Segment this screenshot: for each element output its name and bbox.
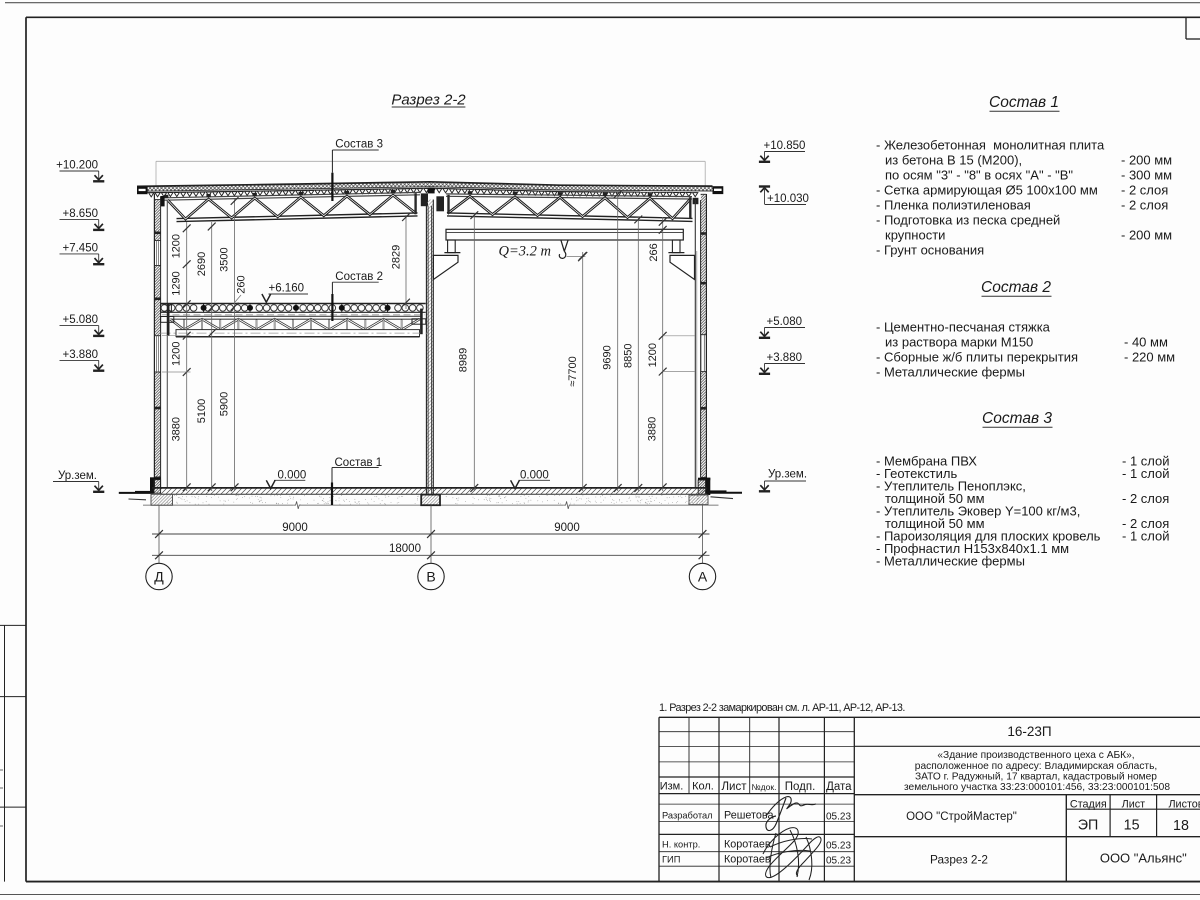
svg-text:+10.850: +10.850 xyxy=(764,140,806,152)
svg-text:Разрез 2-2: Разрез 2-2 xyxy=(391,91,466,108)
svg-text:ЭП: ЭП xyxy=(1078,817,1099,833)
svg-text:расположенное по адресу: Влади: расположенное по адресу: Владимирская об… xyxy=(915,760,1157,772)
svg-text:Разрез 2-2: Разрез 2-2 xyxy=(930,853,988,867)
svg-text:3880: 3880 xyxy=(170,417,182,441)
svg-text:- 2 слоя: - 2 слоя xyxy=(1121,183,1168,198)
svg-text:Д: Д xyxy=(154,568,164,584)
svg-text:Состав 1: Состав 1 xyxy=(989,94,1059,111)
svg-text:+10.200: +10.200 xyxy=(56,160,98,172)
svg-text:15: 15 xyxy=(1124,817,1140,833)
svg-text:8989: 8989 xyxy=(458,348,470,372)
svg-text:1. Разрез 2-2 замаркирован см.: 1. Разрез 2-2 замаркирован см. л. АР-11,… xyxy=(659,702,905,714)
svg-text:Ур.зем.: Ур.зем. xyxy=(58,470,97,482)
svg-text:- Металлические фермы: - Металлические фермы xyxy=(876,365,1025,380)
svg-text:- 1 слой: - 1 слой xyxy=(1122,529,1170,544)
svg-text:из раствора марки М150: из раствора марки М150 xyxy=(885,335,1033,350)
svg-text:В: В xyxy=(426,568,435,584)
svg-text:по осям "3" - "8" в осях "А" -: по осям "3" - "8" в осях "А" - "В" xyxy=(885,168,1073,183)
svg-text:+5.080: +5.080 xyxy=(767,316,803,328)
svg-text:0.000: 0.000 xyxy=(520,470,549,482)
svg-text:- Грунт основания: - Грунт основания xyxy=(876,243,984,258)
svg-text:1200: 1200 xyxy=(170,342,182,366)
svg-text:1200: 1200 xyxy=(170,234,182,258)
svg-text:Стадия: Стадия xyxy=(1070,798,1107,810)
svg-text:- Подготовка из песка средней: - Подготовка из песка средней xyxy=(876,213,1060,228)
svg-text:9000: 9000 xyxy=(282,522,308,534)
svg-text:Коротаев: Коротаев xyxy=(724,854,771,866)
svg-text:- Цементно-песчаная стяжка: - Цементно-песчаная стяжка xyxy=(876,320,1051,335)
svg-text:1200: 1200 xyxy=(647,343,659,367)
svg-text:+6.160: +6.160 xyxy=(269,283,305,295)
svg-text:Подп.: Подп. xyxy=(785,781,816,793)
svg-text:5900: 5900 xyxy=(219,392,231,416)
svg-text:Состав 3: Состав 3 xyxy=(982,410,1052,427)
svg-text:земельного участка 33:23:00010: земельного участка 33:23:000101:456, 33:… xyxy=(904,782,1170,793)
svg-text:ГИП: ГИП xyxy=(662,854,680,864)
svg-text:0.000: 0.000 xyxy=(278,470,307,482)
svg-text:ООО "СтройМастер": ООО "СтройМастер" xyxy=(906,811,1017,823)
svg-text:05.23: 05.23 xyxy=(826,841,851,852)
svg-text:Изм.: Изм. xyxy=(660,781,684,793)
svg-text:05.23: 05.23 xyxy=(826,812,851,823)
svg-text:Дата: Дата xyxy=(826,781,852,793)
svg-text:Состав 1: Состав 1 xyxy=(335,457,383,469)
svg-text:+7.450: +7.450 xyxy=(63,242,99,254)
svg-text:16-23П: 16-23П xyxy=(1007,724,1051,739)
svg-text:2690: 2690 xyxy=(196,252,208,276)
svg-text:Q=3.2 т: Q=3.2 т xyxy=(499,243,551,259)
svg-text:1290: 1290 xyxy=(170,271,182,295)
svg-text:Состав 2: Состав 2 xyxy=(335,271,383,283)
svg-text:ООО "Альянс": ООО "Альянс" xyxy=(1100,850,1187,865)
svg-text:9000: 9000 xyxy=(554,522,580,534)
svg-text:5100: 5100 xyxy=(196,399,208,423)
svg-text:- Сборные ж/б плиты перекрытия: - Сборные ж/б плиты перекрытия xyxy=(876,350,1078,365)
svg-text:ЗАТО г. Радужный, 17 квартал,: ЗАТО г. Радужный, 17 квартал, кадастровы… xyxy=(915,771,1157,782)
svg-text:Ур.зем.: Ур.зем. xyxy=(768,469,807,481)
svg-text:Лист: Лист xyxy=(1122,798,1146,810)
svg-text:+3.880: +3.880 xyxy=(767,352,803,364)
svg-text:Состав 3: Состав 3 xyxy=(335,138,383,150)
svg-text:- 40 мм: - 40 мм xyxy=(1124,335,1168,350)
svg-text:Коротаев: Коротаев xyxy=(724,839,771,851)
svg-text:9690: 9690 xyxy=(602,345,614,369)
svg-text:«Здание производственного цеха: «Здание производственного цеха с АБК», xyxy=(937,750,1134,761)
svg-text:266: 266 xyxy=(648,243,660,261)
svg-text:А: А xyxy=(698,568,708,584)
svg-text:- 200 мм: - 200 мм xyxy=(1121,153,1172,168)
svg-text:- 300 мм: - 300 мм xyxy=(1121,168,1172,183)
svg-text:Состав 2: Состав 2 xyxy=(981,279,1051,296)
svg-text:3500: 3500 xyxy=(219,247,231,271)
svg-text:из бетона В 15 (М200),: из бетона В 15 (М200), xyxy=(885,153,1022,168)
svg-text:- Сетка армирующая Ø5 100х100: - Сетка армирующая Ø5 100х100 мм xyxy=(876,183,1098,198)
svg-text:+8.650: +8.650 xyxy=(63,208,99,220)
svg-text:№док.: №док. xyxy=(752,782,777,792)
svg-text:- 1 слой: - 1 слой xyxy=(1122,466,1170,481)
svg-text:- Пленка полиэтиленовая: - Пленка полиэтиленовая xyxy=(876,198,1031,213)
svg-text:260: 260 xyxy=(235,275,247,293)
svg-text:18: 18 xyxy=(1173,818,1189,834)
svg-text:- 2 слоя: - 2 слоя xyxy=(1122,491,1169,506)
svg-text:05.23: 05.23 xyxy=(826,856,851,867)
svg-text:3880: 3880 xyxy=(647,417,659,441)
svg-text:18000: 18000 xyxy=(389,543,421,555)
svg-text:- Металлические фермы: - Металлические фермы xyxy=(876,554,1025,569)
svg-text:- Железобетонная монолитная п: - Железобетонная монолитная плита xyxy=(876,138,1105,153)
svg-text:8850: 8850 xyxy=(622,344,634,368)
svg-text:+3.880: +3.880 xyxy=(63,349,99,361)
svg-text:- 220 мм: - 220 мм xyxy=(1124,350,1175,365)
svg-text:≈7700: ≈7700 xyxy=(567,356,579,387)
svg-text:Лист: Лист xyxy=(722,781,748,793)
svg-text:+5.080: +5.080 xyxy=(63,314,99,326)
svg-text:крупности: крупности xyxy=(885,228,945,243)
svg-text:Кол.: Кол. xyxy=(692,781,714,793)
svg-text:Н. контр.: Н. контр. xyxy=(662,839,700,849)
svg-text:+10.030: +10.030 xyxy=(767,193,809,205)
svg-text:Листов: Листов xyxy=(1168,798,1200,810)
svg-text:- 2 слоя: - 2 слоя xyxy=(1121,198,1168,213)
svg-text:Разработал: Разработал xyxy=(662,810,713,820)
svg-text:- 200 мм: - 200 мм xyxy=(1121,228,1172,243)
svg-text:2829: 2829 xyxy=(390,245,402,269)
